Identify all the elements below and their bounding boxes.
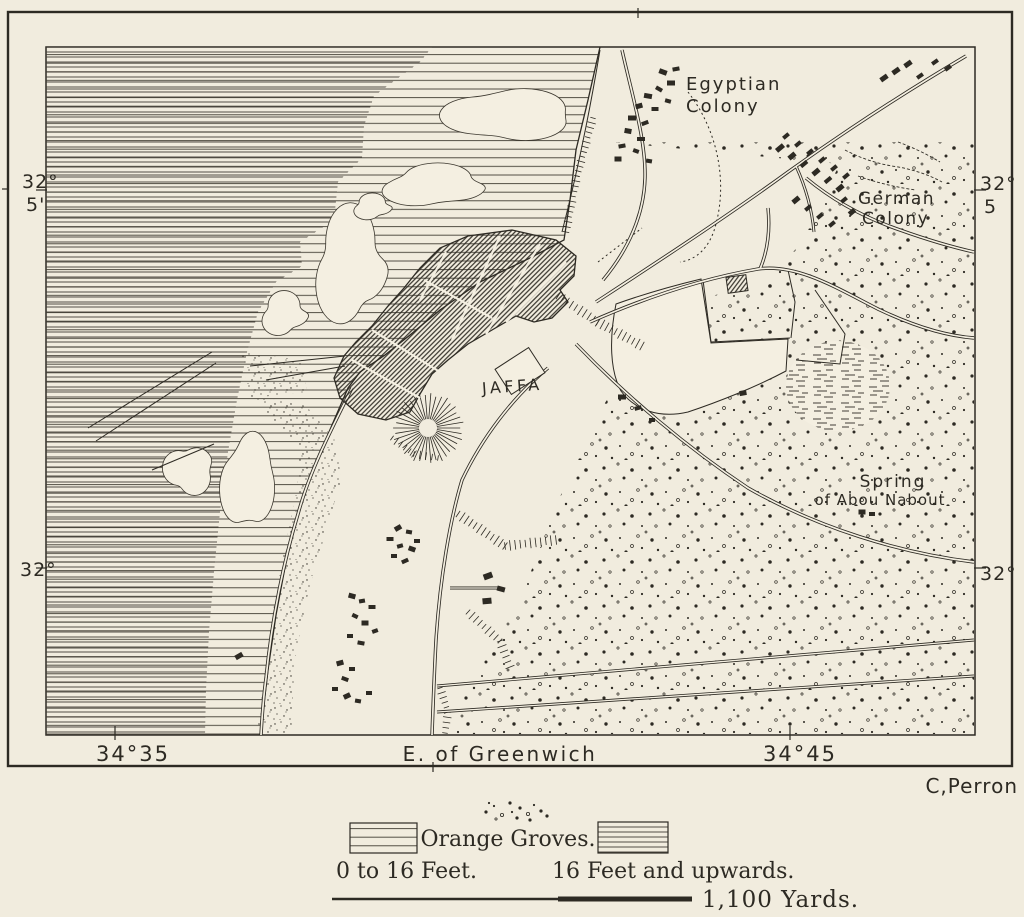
building bbox=[859, 510, 866, 515]
building bbox=[366, 691, 372, 695]
building bbox=[916, 72, 924, 79]
building bbox=[332, 687, 338, 691]
map-content: Egyptian Colony German Colony JAFFA Spri… bbox=[46, 47, 974, 735]
legend-shallow-label: 0 to 16 Feet. bbox=[336, 859, 477, 884]
building bbox=[618, 395, 626, 400]
building bbox=[406, 530, 413, 535]
legend-swatch-shallow bbox=[350, 823, 417, 853]
antique-map-of-jaffa: Egyptian Colony German Colony JAFFA Spri… bbox=[0, 0, 1024, 917]
building bbox=[658, 68, 667, 75]
label-jaffa: JAFFA bbox=[480, 375, 543, 398]
building bbox=[362, 621, 369, 626]
building bbox=[641, 120, 649, 126]
building bbox=[483, 572, 494, 581]
building bbox=[401, 558, 409, 565]
building bbox=[351, 613, 358, 619]
building bbox=[672, 66, 680, 71]
label-egyptian-colony-line1: Egyptian bbox=[686, 74, 781, 95]
lat-bottom-left: 32° bbox=[20, 559, 57, 581]
building bbox=[371, 628, 378, 634]
building bbox=[348, 593, 356, 600]
building bbox=[628, 116, 636, 121]
building bbox=[869, 512, 875, 516]
mosque-block bbox=[726, 275, 748, 294]
building bbox=[903, 60, 912, 69]
building bbox=[343, 692, 351, 699]
legend-deep-label: 16 Feet and upwards. bbox=[552, 859, 794, 884]
lat-top-right-deg: 32° bbox=[980, 173, 1017, 195]
building bbox=[414, 539, 420, 543]
building bbox=[615, 157, 622, 162]
building bbox=[667, 81, 675, 86]
building bbox=[397, 543, 404, 548]
building bbox=[355, 699, 362, 704]
legend: Orange Groves. 0 to 16 Feet. 16 Feet and… bbox=[332, 801, 859, 913]
lat-top-left-min: 5' bbox=[26, 194, 45, 216]
legend-swatch-deep bbox=[598, 822, 668, 853]
building bbox=[369, 605, 376, 609]
building bbox=[349, 667, 355, 671]
lat-top-right-min: 5 bbox=[984, 196, 997, 218]
building bbox=[782, 132, 790, 140]
lon-west-label: 34°35 bbox=[96, 742, 170, 766]
building bbox=[482, 598, 491, 605]
lon-east-label: 34°45 bbox=[763, 742, 837, 766]
building bbox=[336, 660, 344, 667]
building bbox=[408, 545, 416, 552]
lon-center-label: E. of Greenwich bbox=[403, 742, 598, 766]
scale-label: 1,100 Yards. bbox=[702, 887, 859, 913]
building bbox=[387, 537, 394, 541]
building bbox=[359, 599, 366, 604]
building bbox=[652, 107, 659, 111]
marsh-area bbox=[786, 341, 890, 431]
building bbox=[879, 74, 888, 83]
building bbox=[649, 418, 655, 422]
orange-groves-symbol bbox=[484, 801, 548, 821]
building bbox=[357, 640, 365, 645]
label-egyptian-colony-line2: Colony bbox=[686, 96, 760, 117]
building bbox=[618, 143, 626, 148]
building bbox=[811, 168, 820, 177]
building bbox=[632, 148, 639, 154]
dotted-contours bbox=[598, 92, 721, 262]
lat-bottom-right: 32° bbox=[980, 563, 1017, 585]
building bbox=[637, 137, 645, 141]
building bbox=[646, 159, 653, 164]
building bbox=[347, 634, 353, 638]
building bbox=[644, 93, 653, 99]
building bbox=[791, 196, 800, 205]
label-spring-line1: Spring bbox=[860, 472, 927, 492]
label-spring-line2: of Abou Nabout bbox=[815, 491, 946, 509]
jaffa-map-drawing: Egyptian Colony German Colony JAFFA Spri… bbox=[0, 0, 1024, 917]
building bbox=[624, 128, 632, 134]
label-german-colony-line2: Colony bbox=[862, 209, 929, 229]
cartographer-credit: C,Perron bbox=[925, 774, 1018, 798]
building bbox=[391, 554, 397, 558]
label-german-colony-line1: German bbox=[858, 189, 935, 209]
legend-groves-label: Orange Groves. bbox=[420, 827, 595, 852]
building bbox=[655, 86, 663, 93]
building bbox=[394, 524, 403, 532]
building bbox=[931, 58, 939, 65]
building bbox=[496, 586, 505, 593]
building bbox=[341, 676, 349, 682]
building bbox=[891, 67, 900, 76]
building bbox=[665, 98, 672, 103]
